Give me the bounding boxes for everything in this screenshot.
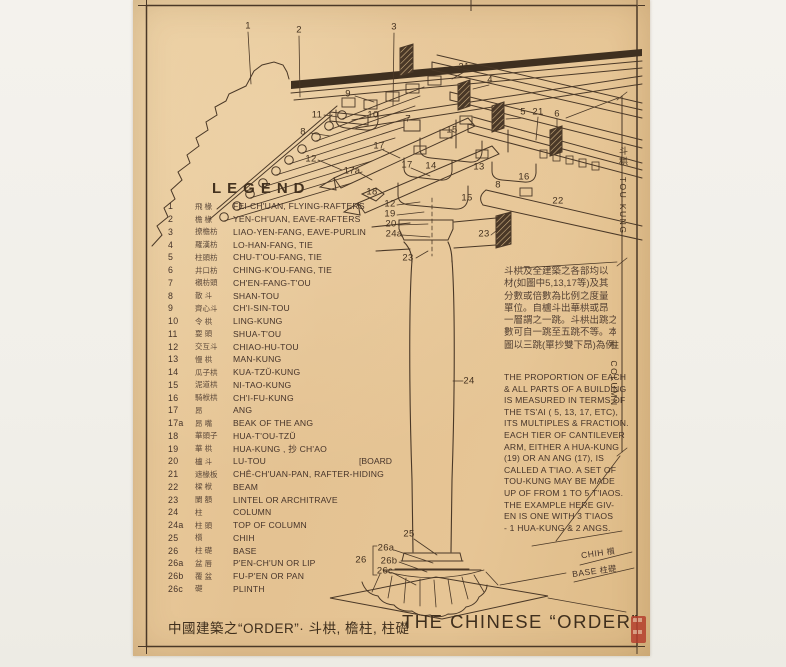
legend-item-number: 19 bbox=[168, 444, 195, 454]
legend-item-number: 13 bbox=[168, 354, 195, 364]
legend-item-chinese: 盆 唇 bbox=[195, 558, 233, 569]
legend-item-number: 11 bbox=[168, 329, 195, 339]
legend-item-number: 8 bbox=[168, 291, 195, 301]
dimension-label-tou-kung: 斗栱 TOU-KUNG bbox=[617, 146, 630, 235]
english-note-line: CALLED A T'IAO. A SET OF bbox=[504, 465, 616, 477]
legend-item-name: COLUMN bbox=[233, 507, 271, 517]
legend-item-chinese: 襯枋頭 bbox=[195, 277, 233, 288]
legend-item-number: 18 bbox=[168, 431, 195, 441]
legend-item-chinese: 櫨 斗 bbox=[195, 456, 233, 467]
chinese-note-line: 分數或倍數為比例之度量 bbox=[504, 291, 616, 303]
legend-row: 4 羅漢枋 LO-HAN-FANG, TIE bbox=[168, 238, 392, 251]
legend-item-chinese: 柱 頭 bbox=[195, 520, 233, 531]
legend-row: 26b 覆 盆 FU-P'EN OR PAN bbox=[168, 570, 392, 583]
legend-item-chinese: 昂 bbox=[195, 405, 233, 416]
english-note-line: EN IS ONE WITH 3 T'IAOS bbox=[504, 511, 616, 523]
legend-item-chinese: 闌 額 bbox=[195, 494, 233, 505]
legend-item-number: 26c bbox=[168, 584, 195, 594]
callout-number: 26 bbox=[355, 555, 366, 566]
legend-item-number: 16 bbox=[168, 393, 195, 403]
english-note-line: (19) OR AN ANG (17), IS bbox=[504, 453, 616, 465]
legend-row: 18 華頭子 HUA-T'OU-TZŬ bbox=[168, 430, 392, 443]
tou-kung-english: TOU-KUNG bbox=[618, 177, 628, 235]
legend-item-number: 3 bbox=[168, 227, 195, 237]
callout-number: 16 bbox=[518, 172, 529, 183]
legend-item-name: BEAM bbox=[233, 482, 258, 492]
callout-number: 14 bbox=[425, 161, 436, 172]
english-note-line: ITS MULTIPLES & FRACTION. bbox=[504, 418, 616, 430]
callout-number: 15 bbox=[446, 125, 457, 136]
legend-item-chinese: 櫍 bbox=[195, 532, 233, 543]
legend-item-number: 24a bbox=[168, 520, 195, 530]
chinese-note-paragraph: 斗栱及全建築之各部均以材(如圖中5,13,17等)及其分數或倍數為比例之度量單位… bbox=[504, 266, 616, 352]
legend-item-name: SHUA-T'OU bbox=[233, 329, 281, 339]
legend-item-number: 4 bbox=[168, 240, 195, 250]
legend-item-number: 5 bbox=[168, 252, 195, 262]
legend-row: 23 闌 額 LINTEL OR ARCHITRAVE bbox=[168, 493, 392, 506]
english-note-line: EACH TIER OF CANTILEVER bbox=[504, 430, 616, 442]
legend-item-name: CH'EN-FANG-T'OU bbox=[233, 278, 311, 288]
legend-row: 5 柱頭枋 CHU-T'OU-FANG, TIE bbox=[168, 251, 392, 264]
english-note-line: THE TS'AI ( 5, 13, 17, ETC), bbox=[504, 407, 616, 419]
legend-item-chinese: 檐 椽 bbox=[195, 214, 233, 225]
callout-number: 24a bbox=[386, 229, 403, 240]
legend-row: 15 泥道栱 NI-TAO-KUNG bbox=[168, 379, 392, 392]
legend-item-name: BASE bbox=[233, 546, 257, 556]
legend-item-name: FU-P'EN OR PAN bbox=[233, 571, 304, 581]
legend-item-number: 24 bbox=[168, 507, 195, 517]
legend-item-number: 22 bbox=[168, 482, 195, 492]
legend-item-number: 20 bbox=[168, 456, 195, 466]
legend-row: 7 襯枋頭 CH'EN-FANG-T'OU bbox=[168, 277, 392, 290]
legend-row: 17a 昂 嘴 BEAK OF THE ANG bbox=[168, 417, 392, 430]
legend-item-name: CHU-T'OU-FANG, TIE bbox=[233, 252, 322, 262]
legend-row: 21 遮椽板 CHÊ-CH'UAN-PAN, RAFTER-HIDING bbox=[168, 468, 392, 481]
english-note-line: THE PROPORTION OF EACH bbox=[504, 372, 616, 384]
legend-item-number: 26b bbox=[168, 571, 195, 581]
legend-item-chinese: 撩檐枋 bbox=[195, 226, 233, 237]
legend-item-chinese: 柱 礎 bbox=[195, 545, 233, 556]
seal-glyph bbox=[633, 630, 637, 634]
callout-number: 26c bbox=[377, 566, 393, 577]
legend-item-name: LINTEL OR ARCHITRAVE bbox=[233, 495, 338, 505]
legend-row: 17 昂 ANG bbox=[168, 404, 392, 417]
callout-number: 9 bbox=[345, 89, 351, 100]
legend-item-number: 10 bbox=[168, 316, 195, 326]
legend-item-chinese: 慢 栱 bbox=[195, 354, 233, 365]
legend-item-chinese: 騎栿栱 bbox=[195, 392, 233, 403]
legend-row: 10 令 栱 LING-KUNG bbox=[168, 315, 392, 328]
legend-item-number: 6 bbox=[168, 265, 195, 275]
seal-glyph bbox=[633, 618, 637, 622]
callout-number: 25 bbox=[403, 529, 414, 540]
chinese-note-line: 數可自一跳至五跳不等。本 bbox=[504, 327, 616, 339]
callout-number: 22 bbox=[552, 196, 563, 207]
legend-item-chinese: 令 栱 bbox=[195, 316, 233, 327]
legend-row: 3 撩檐枋 LIAO-YEN-FANG, EAVE-PURLIN bbox=[168, 226, 392, 239]
legend-item-chinese: 柱 bbox=[195, 507, 233, 518]
legend-row: 14 瓜子栱 KUA-TZŬ-KUNG bbox=[168, 366, 392, 379]
legend-row: 9 齊心斗 CH'I-SIN-TOU bbox=[168, 302, 392, 315]
legend-row: 19 華 栱 HUA-KUNG , 抄 CH'AO bbox=[168, 442, 392, 455]
seal-glyph bbox=[638, 618, 642, 622]
legend-row: 24a 柱 頭 TOP OF COLUMN bbox=[168, 519, 392, 532]
legend-item-name: TOP OF COLUMN bbox=[233, 520, 307, 530]
legend-row: 11 耍 頭 SHUA-T'OU bbox=[168, 328, 392, 341]
english-note-line: THE EXAMPLE HERE GIV- bbox=[504, 500, 616, 512]
legend-item-chinese: 散 斗 bbox=[195, 290, 233, 301]
callout-number: 4 bbox=[487, 75, 493, 86]
dimension-label-column: 柱 COLUMN bbox=[608, 340, 621, 407]
callout-number: 17 bbox=[401, 160, 412, 171]
chinese-note-line: 圖以三跳(單抄雙下昂)為例。 bbox=[504, 340, 616, 352]
legend-item-note: [BOARD bbox=[359, 456, 392, 466]
legend-item-name: PLINTH bbox=[233, 584, 265, 594]
legend-item-name: NI-TAO-KUNG bbox=[233, 380, 291, 390]
legend-item-chinese: 遮椽板 bbox=[195, 469, 233, 480]
legend-item-name: SHAN-TOU bbox=[233, 291, 279, 301]
legend-item-number: 2 bbox=[168, 214, 195, 224]
legend-item-number: 17a bbox=[168, 418, 195, 428]
legend-item-chinese: 礎 bbox=[195, 583, 233, 594]
legend-item-name: HUA-KUNG , 抄 CH'AO bbox=[233, 443, 327, 455]
callout-number: 23 bbox=[478, 229, 489, 240]
legend-item-chinese: 飛 椽 bbox=[195, 201, 233, 212]
column-chinese: 柱 bbox=[609, 340, 619, 351]
legend-item-number: 14 bbox=[168, 367, 195, 377]
legend-item-chinese: 井口枋 bbox=[195, 265, 233, 276]
callout-number: 24 bbox=[463, 376, 474, 387]
legend-row: 20 櫨 斗 LU-TOU [BOARD bbox=[168, 455, 392, 468]
legend-row: 6 井口枋 CHING-K'OU-FANG, TIE bbox=[168, 264, 392, 277]
callout-number: 21 bbox=[458, 62, 469, 73]
legend-item-chinese: 樑 栿 bbox=[195, 481, 233, 492]
legend-item-name: P'EN-CH'UN OR LIP bbox=[233, 558, 316, 568]
legend-row: 13 慢 栱 MAN-KUNG bbox=[168, 353, 392, 366]
legend-item-chinese: 羅漢枋 bbox=[195, 239, 233, 250]
title-chinese: 中國建築之“ORDER”· 斗栱, 檐柱, 柱礎 bbox=[168, 617, 410, 637]
legend-row: 26c 礎 PLINTH bbox=[168, 583, 392, 596]
legend-item-name: CHING-K'OU-FANG, TIE bbox=[233, 265, 332, 275]
legend-row: 22 樑 栿 BEAM bbox=[168, 481, 392, 494]
legend-item-number: 23 bbox=[168, 495, 195, 505]
legend-item-chinese: 柱頭枋 bbox=[195, 252, 233, 263]
english-note-paragraph: THE PROPORTION OF EACH& ALL PARTS OF A B… bbox=[504, 372, 616, 534]
chinese-note-line: 一層謂之一跳。斗栱出跳之 bbox=[504, 315, 616, 327]
red-seal-stamp bbox=[631, 616, 646, 643]
seal-glyph bbox=[638, 630, 642, 634]
english-note-line: ARM, EITHER A HUA-KUNG bbox=[504, 442, 616, 454]
legend-item-name: LU-TOU bbox=[233, 456, 266, 466]
legend-item-number: 26a bbox=[168, 558, 195, 568]
callout-number: 8 bbox=[495, 180, 501, 191]
legend-item-number: 9 bbox=[168, 303, 195, 313]
title-english: THE CHINESE “ORDER” bbox=[402, 611, 639, 633]
callout-number: 15 bbox=[461, 193, 472, 204]
callout-number: 8 bbox=[300, 127, 306, 138]
legend-item-name: CH'I-FU-KUNG bbox=[233, 393, 294, 403]
legend-item-chinese: 瓜子栱 bbox=[195, 367, 233, 378]
callout-number: 5 bbox=[520, 107, 526, 118]
legend-item-chinese: 交互斗 bbox=[195, 341, 233, 352]
legend-item-chinese: 齊心斗 bbox=[195, 303, 233, 314]
column-english: COLUMN bbox=[609, 360, 619, 406]
legend-list: 1 飛 椽 FEI-CH'UAN, FLYING-RAFTERS 2 檐 椽 Y… bbox=[168, 200, 392, 595]
english-note-line: UP OF FROM 1 TO 5 T'IAOS. bbox=[504, 488, 616, 500]
english-note-line: TOU-KUNG MAY BE MADE bbox=[504, 476, 616, 488]
legend-item-name: MAN-KUNG bbox=[233, 354, 281, 364]
callout-number: 7 bbox=[405, 114, 411, 125]
english-note-line: - 1 HUA-KUNG & 2 ANGS. bbox=[504, 523, 616, 535]
legend-item-number: 21 bbox=[168, 469, 195, 479]
callout-number: 3 bbox=[391, 22, 397, 33]
legend-item-name: KUA-TZŬ-KUNG bbox=[233, 367, 300, 377]
callout-number: 13 bbox=[473, 162, 484, 173]
legend-item-number: 15 bbox=[168, 380, 195, 390]
callout-number: 10 bbox=[367, 110, 378, 121]
callout-number: 17a bbox=[344, 166, 361, 177]
legend-item-name: FEI-CH'UAN, FLYING-RAFTERS bbox=[233, 201, 365, 211]
legend-row: 16 騎栿栱 CH'I-FU-KUNG bbox=[168, 391, 392, 404]
callout-number: 17 bbox=[373, 141, 384, 152]
english-note-line: & ALL PARTS OF A BUILDING bbox=[504, 384, 616, 396]
legend-row: 1 飛 椽 FEI-CH'UAN, FLYING-RAFTERS bbox=[168, 200, 392, 213]
legend-item-chinese: 昂 嘴 bbox=[195, 418, 233, 429]
legend-item-name: CHIH bbox=[233, 533, 255, 543]
scanned-drawing-page: LEGEND 1 飛 椽 FEI-CH'UAN, FLYING-RAFTERS … bbox=[0, 0, 786, 667]
legend-item-name: YEN-CH'UAN, EAVE-RAFTERS bbox=[233, 214, 361, 224]
legend-item-name: HUA-T'OU-TZŬ bbox=[233, 431, 296, 441]
callout-number: 18 bbox=[366, 187, 377, 198]
legend-item-number: 7 bbox=[168, 278, 195, 288]
legend-item-name: ANG bbox=[233, 405, 252, 415]
callout-number: 11 bbox=[312, 110, 322, 121]
legend-item-name: LIAO-YEN-FANG, EAVE-PURLIN bbox=[233, 227, 366, 237]
legend-item-number: 17 bbox=[168, 405, 195, 415]
legend-item-name: BEAK OF THE ANG bbox=[233, 418, 313, 428]
legend-item-number: 12 bbox=[168, 342, 195, 352]
legend-item-chinese: 耍 頭 bbox=[195, 328, 233, 339]
legend-row: 12 交互斗 CHIAO-HU-TOU bbox=[168, 340, 392, 353]
chinese-note-line: 材(如圖中5,13,17等)及其 bbox=[504, 278, 616, 290]
chinese-note-line: 單位。自櫨斗出華栱或昂 bbox=[504, 303, 616, 315]
callout-number: 21 bbox=[532, 107, 543, 118]
legend-row: 24 柱 COLUMN bbox=[168, 506, 392, 519]
english-note-line: IS MEASURED IN TERMS OF bbox=[504, 395, 616, 407]
legend-item-name: CHÊ-CH'UAN-PAN, RAFTER-HIDING bbox=[233, 469, 384, 479]
chinese-note-line: 斗栱及全建築之各部均以 bbox=[504, 266, 616, 278]
legend-row: 25 櫍 CHIH bbox=[168, 532, 392, 545]
callout-number: 12 bbox=[305, 154, 316, 165]
legend-item-number: 25 bbox=[168, 533, 195, 543]
legend-item-name: LO-HAN-FANG, TIE bbox=[233, 240, 313, 250]
legend-item-chinese: 覆 盆 bbox=[195, 571, 233, 582]
callout-number: 26a bbox=[378, 543, 395, 554]
callout-number: 1 bbox=[245, 21, 251, 32]
legend-item-chinese: 華 栱 bbox=[195, 443, 233, 454]
legend-item-name: LING-KUNG bbox=[233, 316, 283, 326]
callout-number: 2 bbox=[296, 25, 302, 36]
legend-row: 2 檐 椽 YEN-CH'UAN, EAVE-RAFTERS bbox=[168, 213, 392, 226]
callout-number: 6 bbox=[554, 109, 560, 120]
callout-number: 23 bbox=[402, 253, 413, 264]
callout-number: 8 bbox=[368, 74, 374, 85]
legend-item-name: CH'I-SIN-TOU bbox=[233, 303, 290, 313]
tou-kung-chinese: 斗栱 bbox=[618, 146, 628, 167]
legend-row: 8 散 斗 SHAN-TOU bbox=[168, 289, 392, 302]
legend-item-chinese: 泥道栱 bbox=[195, 379, 233, 390]
legend-item-name: CHIAO-HU-TOU bbox=[233, 342, 299, 352]
legend-item-number: 26 bbox=[168, 546, 195, 556]
legend-heading: LEGEND bbox=[212, 180, 311, 197]
legend-item-chinese: 華頭子 bbox=[195, 430, 233, 441]
legend-item-number: 1 bbox=[168, 201, 195, 211]
